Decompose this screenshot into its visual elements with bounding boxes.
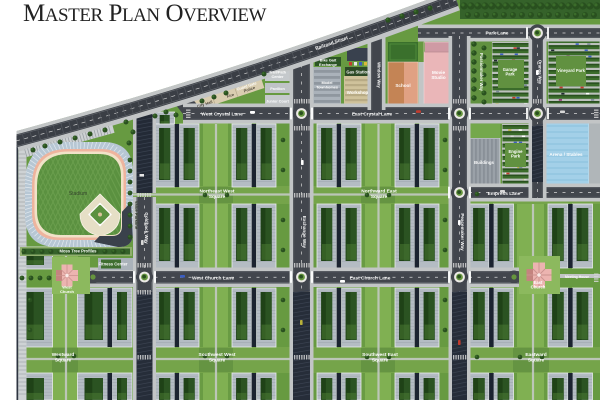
svg-text:Northeast West: Northeast West: [199, 189, 234, 195]
svg-text:Buildings: Buildings: [474, 160, 495, 165]
svg-text:Park: Park: [511, 154, 521, 159]
svg-text:Southwest East: Southwest East: [362, 352, 398, 358]
svg-text:East Church Lane: East Church Lane: [350, 276, 391, 282]
svg-text:MASTER PLAN OVERVIEW: MASTER PLAN OVERVIEW: [23, 0, 267, 27]
svg-text:Church: Church: [60, 289, 75, 294]
svg-text:Square: Square: [209, 194, 226, 200]
svg-text:Meeting House: Meeting House: [565, 275, 589, 279]
svg-text:Exchange: Exchange: [319, 63, 337, 67]
svg-text:Workshop: Workshop: [347, 90, 369, 95]
svg-text:Square: Square: [528, 357, 545, 363]
svg-text:Northward East: Northward East: [361, 189, 397, 195]
svg-text:West Crystal Lane: West Crystal Lane: [201, 112, 243, 118]
svg-text:Center: Center: [271, 75, 284, 79]
svg-text:Fitness Center: Fitness Center: [98, 262, 127, 267]
svg-text:East Crystal Lane: East Crystal Lane: [352, 112, 393, 118]
svg-text:Passionmaker Way: Passionmaker Way: [479, 53, 484, 92]
svg-text:Goldback Way: Goldback Way: [144, 212, 149, 244]
svg-text:Square: Square: [55, 357, 72, 363]
svg-text:Stadium: Stadium: [69, 191, 87, 197]
svg-text:Studio: Studio: [431, 75, 445, 80]
svg-text:Square: Square: [371, 194, 388, 200]
svg-text:Southwest West: Southwest West: [199, 352, 236, 358]
svg-text:Moss Tree Profiles: Moss Tree Profiles: [59, 249, 97, 254]
svg-text:Window Way: Window Way: [377, 62, 382, 88]
svg-text:Arena / Stables: Arena / Stables: [549, 152, 583, 157]
svg-text:Junior Court: Junior Court: [266, 100, 290, 104]
svg-text:Park Lane: Park Lane: [486, 31, 509, 37]
svg-text:Eastward: Eastward: [525, 352, 546, 358]
svg-text:Gas Station: Gas Station: [346, 70, 370, 75]
svg-text:Townhomes: Townhomes: [316, 85, 338, 89]
svg-text:Peacemaker Way: Peacemaker Way: [460, 213, 465, 251]
svg-text:Church: Church: [531, 285, 546, 290]
svg-text:Park: Park: [505, 72, 515, 77]
svg-text:Square: Square: [209, 357, 226, 363]
svg-text:West Church Lane: West Church Lane: [192, 276, 234, 282]
svg-text:Value Parkline: Value Parkline: [134, 201, 139, 230]
svg-text:Vineyard Park: Vineyard Park: [557, 68, 586, 73]
svg-text:School: School: [395, 83, 410, 88]
svg-text:Empress Lane: Empress Lane: [488, 191, 521, 197]
svg-text:Orange Way: Orange Way: [538, 60, 543, 85]
svg-text:Exchange Way: Exchange Way: [302, 216, 307, 249]
svg-text:Westward: Westward: [52, 352, 75, 358]
svg-text:Square: Square: [372, 357, 389, 363]
svg-text:Pavilion: Pavilion: [270, 87, 285, 91]
